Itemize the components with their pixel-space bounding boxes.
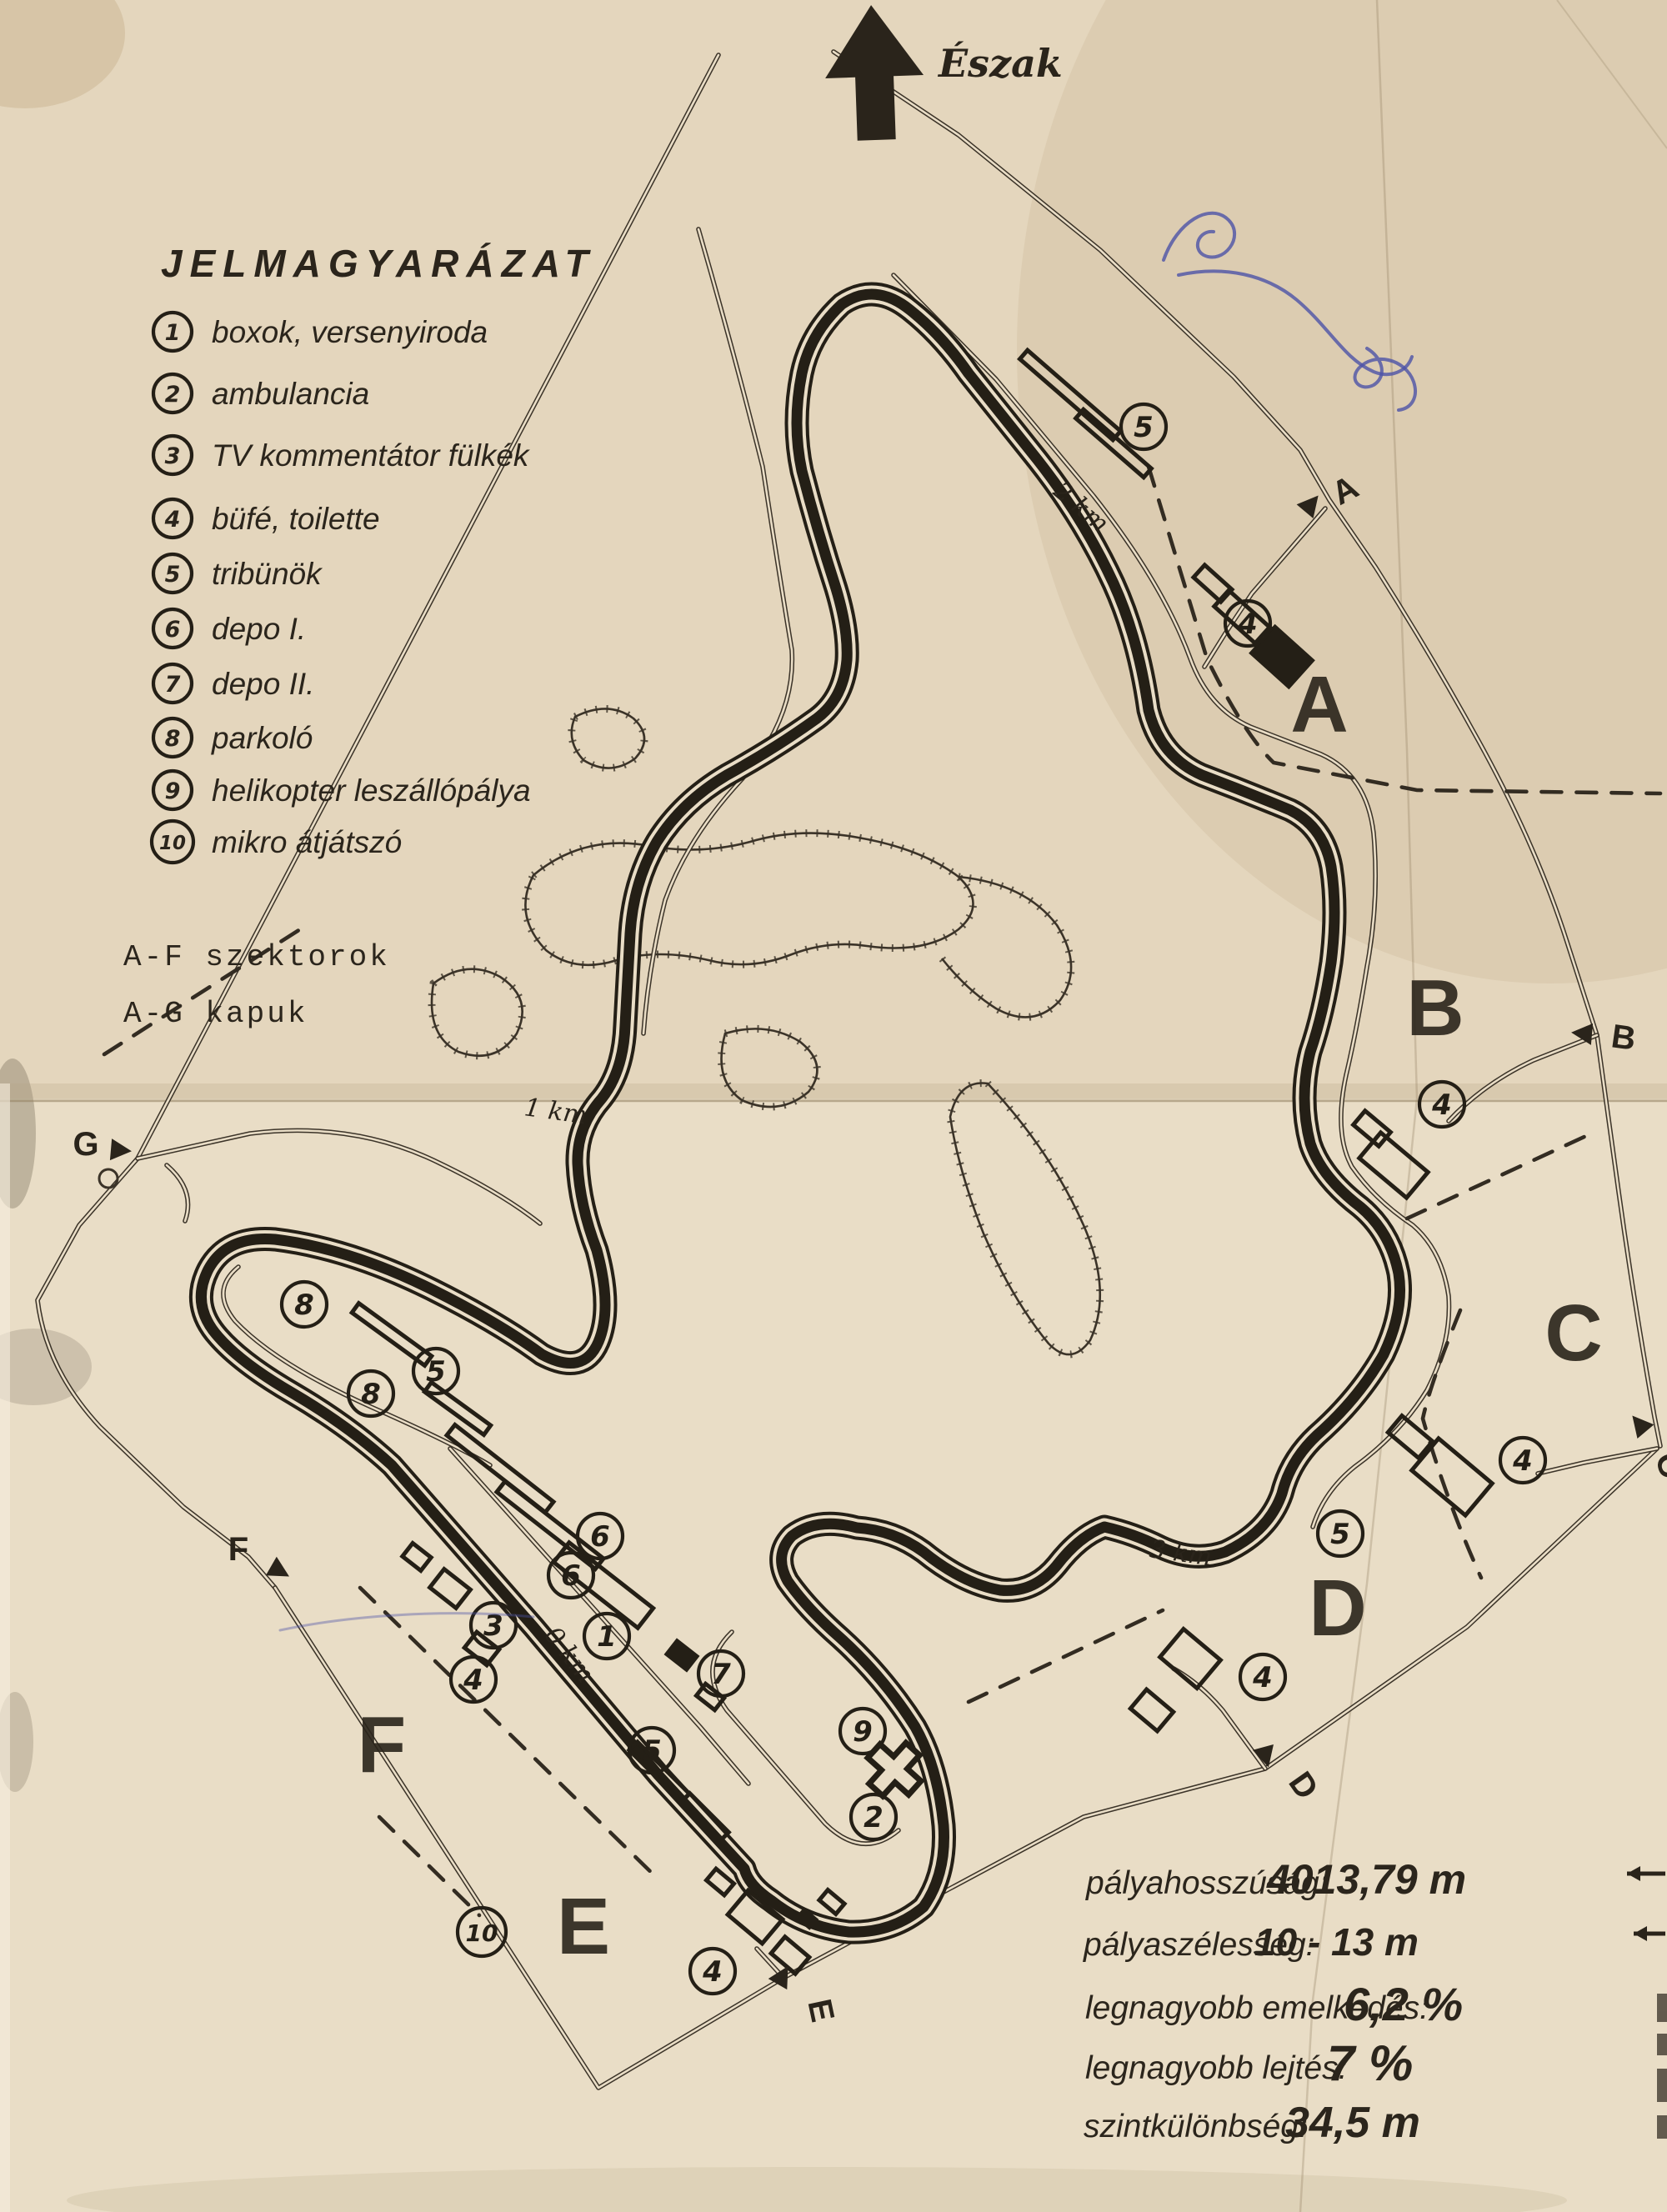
scanned-track-map-page: 5 4 4 4 5 4 8 8 5 6 6 1 3 4 7 9 2 5 10 4… [0,0,1667,2212]
svg-text:6: 6 [561,1559,581,1593]
stat-value-length: 4013,79 m [1266,1856,1466,1903]
svg-text:5: 5 [642,1734,662,1768]
svg-text:8: 8 [361,1378,381,1411]
svg-text:7: 7 [711,1658,731,1691]
svg-text:mikro átjátszó: mikro átjátszó [212,825,402,859]
svg-text:6: 6 [590,1520,610,1554]
legend-title: JELMAGYARÁZAT [161,242,596,285]
svg-text:9: 9 [165,778,181,804]
stat-value-climb: 6,2 % [1344,1978,1463,2030]
svg-text:boxok, versenyiroda: boxok, versenyiroda [212,315,488,349]
svg-text:4: 4 [463,1664,483,1697]
svg-text:5: 5 [426,1355,446,1389]
gate-letter-B: B [1609,1018,1638,1058]
stat-value-width: 10 - 13 m [1254,1920,1419,1964]
svg-text:ambulancia: ambulancia [212,377,369,411]
page-edge-strip [0,1083,10,2212]
sector-letter-E: E [557,1882,610,1971]
sector-letter-B: B [1406,963,1464,1053]
stat-label-elevation: szintkülönbség: [1084,2109,1308,2144]
svg-text:büfé, toilette: büfé, toilette [212,502,380,536]
legend-gates-line: A-G kapuk [123,997,308,1031]
map-canvas: 5 4 4 4 5 4 8 8 5 6 6 1 3 4 7 9 2 5 10 4… [0,0,1667,2212]
stat-value-descent: 7 % [1327,2035,1413,2091]
svg-text:9: 9 [853,1715,873,1749]
svg-text:1: 1 [165,320,181,346]
gate-letter-G: G [73,1126,98,1163]
svg-text:4: 4 [1512,1444,1533,1478]
svg-text:8: 8 [294,1289,314,1322]
svg-text:5: 5 [1134,411,1154,444]
svg-text:4: 4 [1237,608,1258,641]
svg-text:TV kommentátor fülkék: TV kommentátor fülkék [212,438,531,473]
svg-text:4: 4 [1252,1661,1273,1694]
svg-text:depo I.: depo I. [212,612,306,646]
svg-text:6: 6 [165,617,181,643]
sector-letter-C: C [1544,1289,1602,1378]
svg-text:8: 8 [165,726,181,752]
svg-text:4: 4 [164,507,181,533]
svg-text:parkoló: parkoló [211,721,313,755]
svg-text:10: 10 [159,833,186,854]
sector-letter-A: A [1290,660,1348,749]
svg-text:5: 5 [1330,1518,1350,1551]
gate-letter-F: F [228,1531,248,1568]
svg-text:helikopter leszállópálya: helikopter leszállópálya [212,773,531,808]
sector-letter-D: D [1309,1564,1366,1653]
svg-text:tribünök: tribünök [212,557,323,591]
svg-text:depo II.: depo II. [212,667,314,701]
svg-text:1: 1 [597,1620,617,1654]
legend-sectors-line: A-F szektorok [123,940,390,974]
svg-text:4: 4 [702,1955,723,1989]
sector-letter-F: F [358,1700,407,1789]
svg-text:7: 7 [165,672,181,698]
svg-text:2: 2 [864,1801,884,1834]
svg-text:2: 2 [165,382,181,408]
north-label: Észak [937,40,1063,86]
svg-text:10: 10 [466,1919,498,1947]
svg-text:5: 5 [165,562,181,588]
svg-text:3: 3 [165,443,181,469]
stat-value-elevation: 34,5 m [1285,2099,1420,2147]
stat-label-descent: legnagyobb lejtés: [1085,2050,1347,2086]
svg-text:4: 4 [1431,1088,1452,1122]
